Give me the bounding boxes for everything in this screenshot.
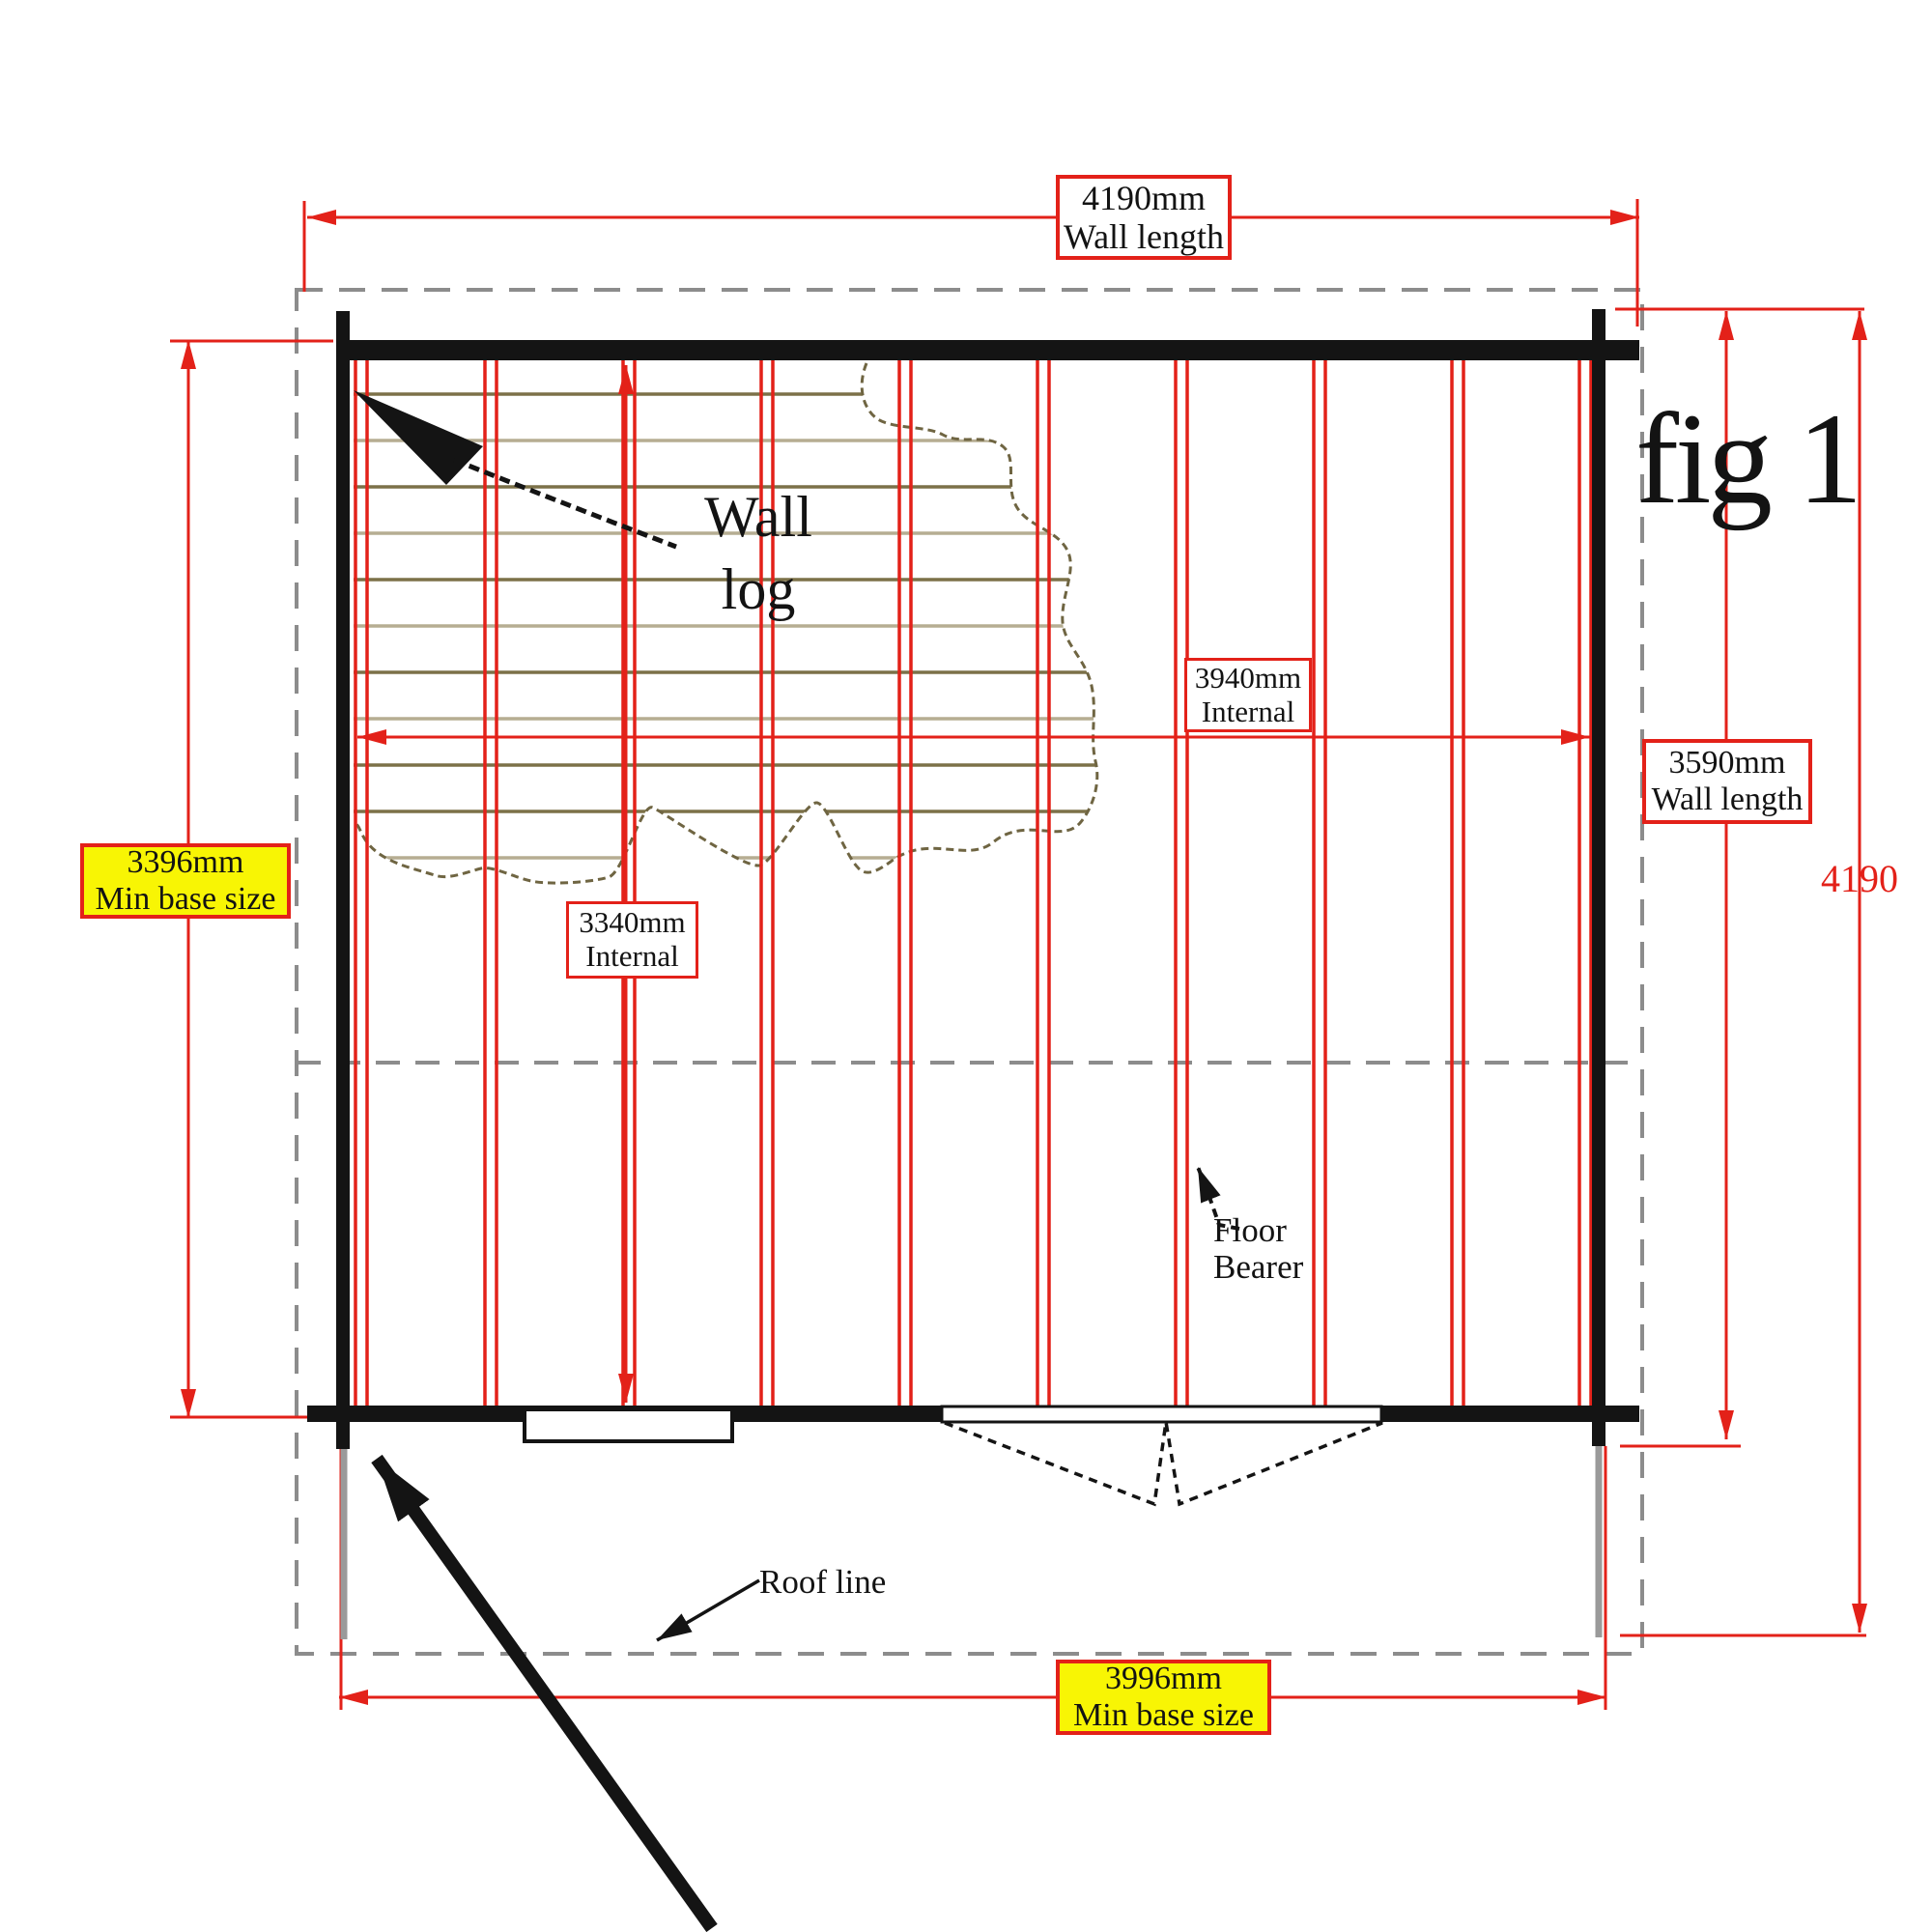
- dim-value: 3396mm: [128, 844, 244, 881]
- corner-post-shadows: [344, 1446, 1599, 1639]
- dim-caption: Wall length: [1064, 217, 1224, 256]
- roof-line-arrow: [657, 1580, 759, 1640]
- dim-caption: Wall length: [1652, 781, 1804, 818]
- dim-caption: Min base size: [96, 881, 276, 918]
- dim-caption: Internal: [585, 940, 678, 974]
- roof-line-label: Roof line: [759, 1563, 933, 1601]
- wall-log-arrow-head: [354, 390, 483, 485]
- dim-value: 3590mm: [1669, 745, 1786, 781]
- roof-line-dashed-outline: [297, 290, 1642, 1654]
- wall-log-label: Wall log: [662, 481, 855, 626]
- door-threshold: [942, 1406, 1381, 1422]
- dim-label-top-wall-length: 4190mm Wall length: [1056, 175, 1232, 260]
- dim-label-bottom-min-base: 3996mm Min base size: [1056, 1660, 1271, 1735]
- dim-value: 3340mm: [579, 906, 685, 940]
- floor-bearer-label: Floor Bearer: [1213, 1212, 1349, 1286]
- dim-label-internal-width: 3940mm Internal: [1184, 658, 1312, 732]
- dim-label-left-min-base: 3396mm Min base size: [80, 843, 291, 919]
- dim-label-right-wall-length: 3590mm Wall length: [1642, 739, 1812, 824]
- log-cabin-base-plan: 4190mm Wall length 3590mm Wall length 39…: [0, 0, 1932, 1932]
- window: [525, 1409, 732, 1441]
- dim-value: 4190mm: [1082, 179, 1206, 217]
- dim-caption: Internal: [1202, 696, 1294, 729]
- dim-label-overall-depth: 4190: [1816, 858, 1903, 901]
- double-door-swing: [945, 1422, 1382, 1504]
- wall-right: [1592, 309, 1605, 1446]
- dim-caption: Min base size: [1073, 1697, 1254, 1734]
- dim-value: 3940mm: [1195, 662, 1301, 696]
- wall-left: [336, 311, 350, 1449]
- wall-top: [336, 340, 1639, 360]
- dim-value: 3996mm: [1105, 1661, 1222, 1697]
- dim-label-internal-depth: 3340mm Internal: [566, 901, 698, 979]
- floor-plan-drawing: [0, 0, 1932, 1932]
- corner-pointer-arrow: [377, 1459, 712, 1928]
- figure-caption: fig 1: [1635, 394, 1877, 525]
- wall-bottom-right-segment: [1381, 1406, 1639, 1422]
